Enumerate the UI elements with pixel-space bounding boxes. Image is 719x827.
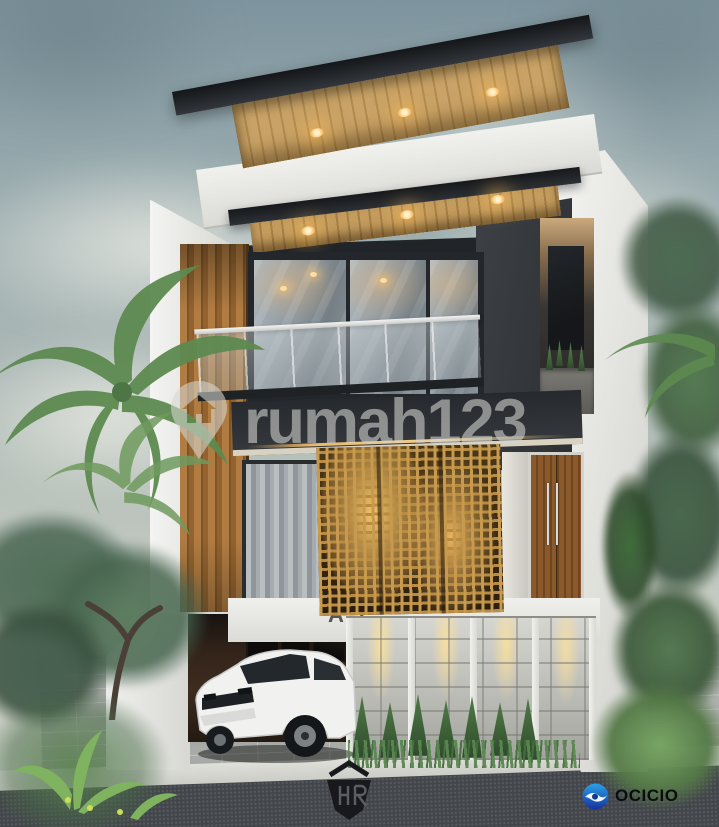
entry-door — [528, 452, 584, 610]
palm-frond — [590, 300, 719, 420]
ocicio-logo: OCICIO — [582, 780, 718, 812]
ocicio-logo-text: OCICIO — [615, 786, 678, 806]
suv-car — [190, 638, 362, 766]
lattice-panel-gap — [376, 447, 384, 615]
render-canvas: A 1 — [0, 0, 719, 827]
grass-strip — [348, 740, 580, 768]
interior-lamp — [380, 278, 387, 283]
tropical-plant — [10, 700, 180, 820]
niche-window — [548, 246, 584, 350]
hr-monogram-logo — [318, 760, 380, 822]
golden-lattice-screen — [316, 444, 503, 616]
rumah123-pin-icon — [170, 380, 228, 460]
ocicio-circle-icon — [582, 783, 609, 810]
door-handle — [547, 483, 549, 545]
watermark-text: rumah123 — [244, 386, 526, 458]
interior-lamp — [310, 272, 317, 277]
door-handle — [556, 483, 558, 545]
lit-niche — [540, 218, 594, 414]
interior-lamp — [280, 286, 287, 291]
white-pillar — [502, 452, 528, 610]
lattice-panel-gap — [438, 445, 446, 613]
